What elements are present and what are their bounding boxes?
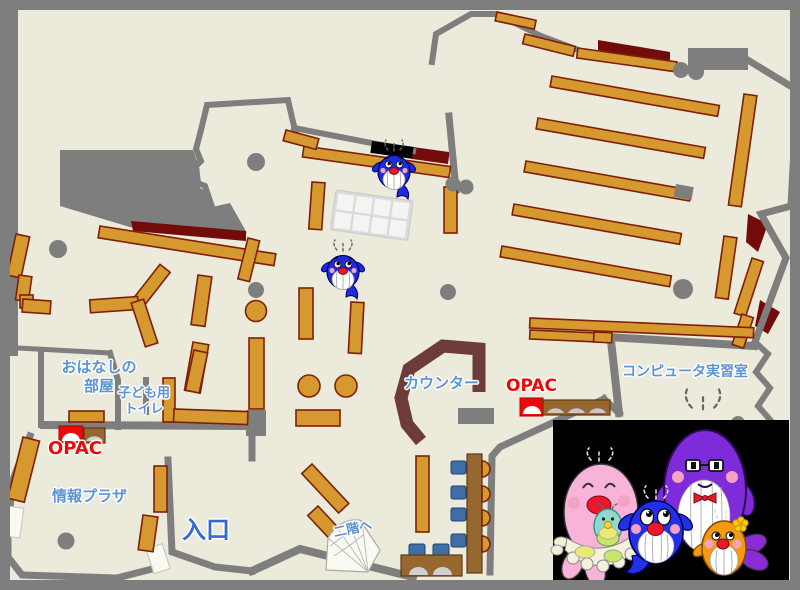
reading-tables-grid xyxy=(330,190,413,240)
bench-seats xyxy=(401,544,462,576)
mascot-panel xyxy=(551,420,789,588)
label-computer-room: コンピュータ実習室 xyxy=(622,364,748,382)
service-counter xyxy=(401,346,479,441)
whale-spout-icon xyxy=(686,387,720,409)
label-opac-right: OPAC xyxy=(506,376,557,397)
whale-mascot-icon xyxy=(320,240,367,299)
library-floor-map: おはなしの部屋 子ども用トイレ OPAC 情報プラザ 入口 カウンター OPAC… xyxy=(0,0,800,590)
label-entrance: 入口 xyxy=(182,515,230,545)
y-shaped-shelf xyxy=(90,264,171,347)
label-counter: カウンター xyxy=(404,374,479,393)
label-info-plaza: 情報プラザ xyxy=(52,487,127,506)
label-opac-left: OPAC xyxy=(48,438,102,461)
book-return-box xyxy=(458,408,494,424)
label-kids-toilet: 子ども用トイレ xyxy=(106,386,182,419)
opac-terminal-right xyxy=(520,398,610,416)
